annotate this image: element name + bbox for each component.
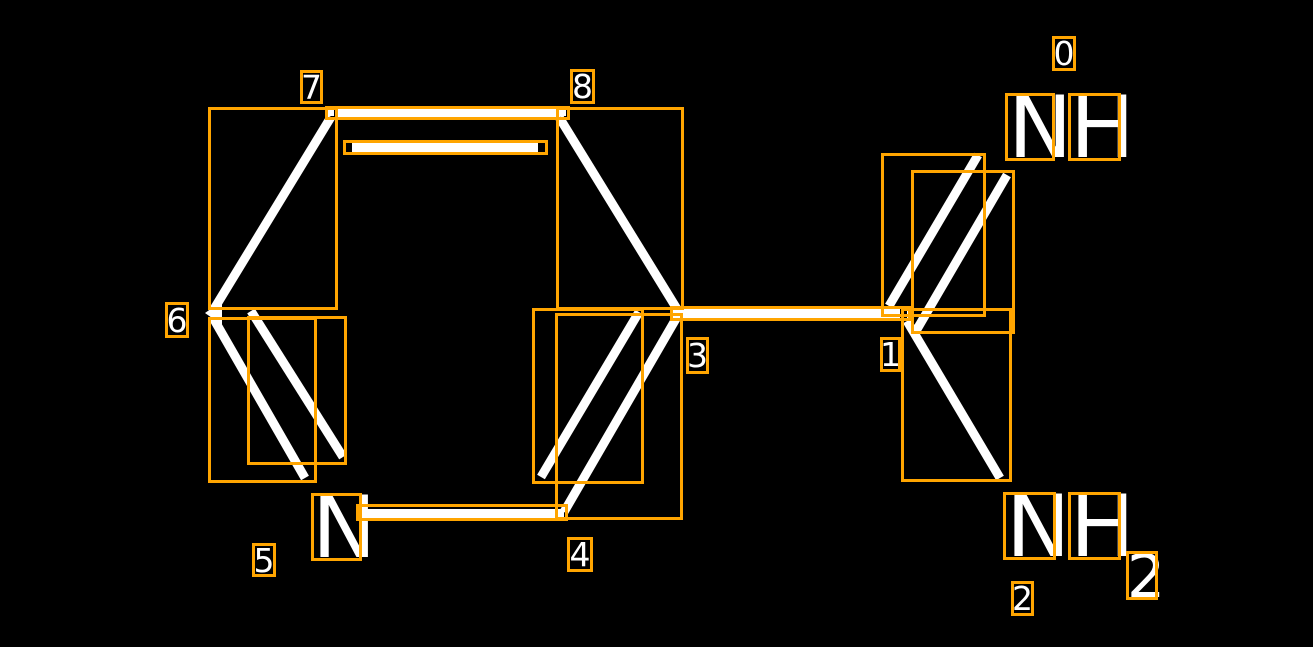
annotation-label-layer: 012345678 [0,0,1313,647]
annotation-label-5: 5 [252,543,276,577]
annotation-label-2: 2 [1011,581,1034,616]
annotation-label-8: 8 [570,69,595,104]
molecule-annotation-canvas: N N H N H 2 012345678 [0,0,1313,647]
annotation-label-7: 7 [300,70,323,104]
annotation-label-1: 1 [880,337,901,372]
annotation-label-4: 4 [567,537,593,572]
annotation-label-3: 3 [686,337,709,374]
annotation-label-6: 6 [165,302,189,338]
annotation-label-0: 0 [1052,36,1076,71]
